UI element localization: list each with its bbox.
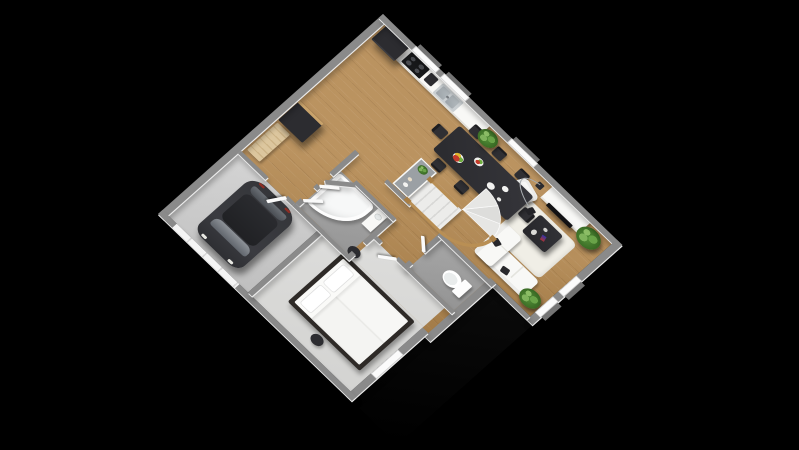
table-book — [540, 235, 547, 242]
cup — [496, 197, 502, 203]
washbasin — [373, 212, 383, 222]
car-headlight — [201, 233, 208, 239]
floor-plan — [158, 14, 622, 445]
table-decor — [542, 227, 548, 233]
sofa-seam — [510, 266, 523, 278]
floorplan-stage — [0, 0, 799, 450]
table-decor — [530, 228, 538, 236]
car-headlight — [227, 259, 234, 265]
fruit-plate — [451, 151, 466, 165]
plate — [501, 185, 510, 194]
plate — [485, 181, 496, 191]
fruit-plate — [472, 156, 485, 168]
door-leaf-entry — [303, 199, 324, 203]
